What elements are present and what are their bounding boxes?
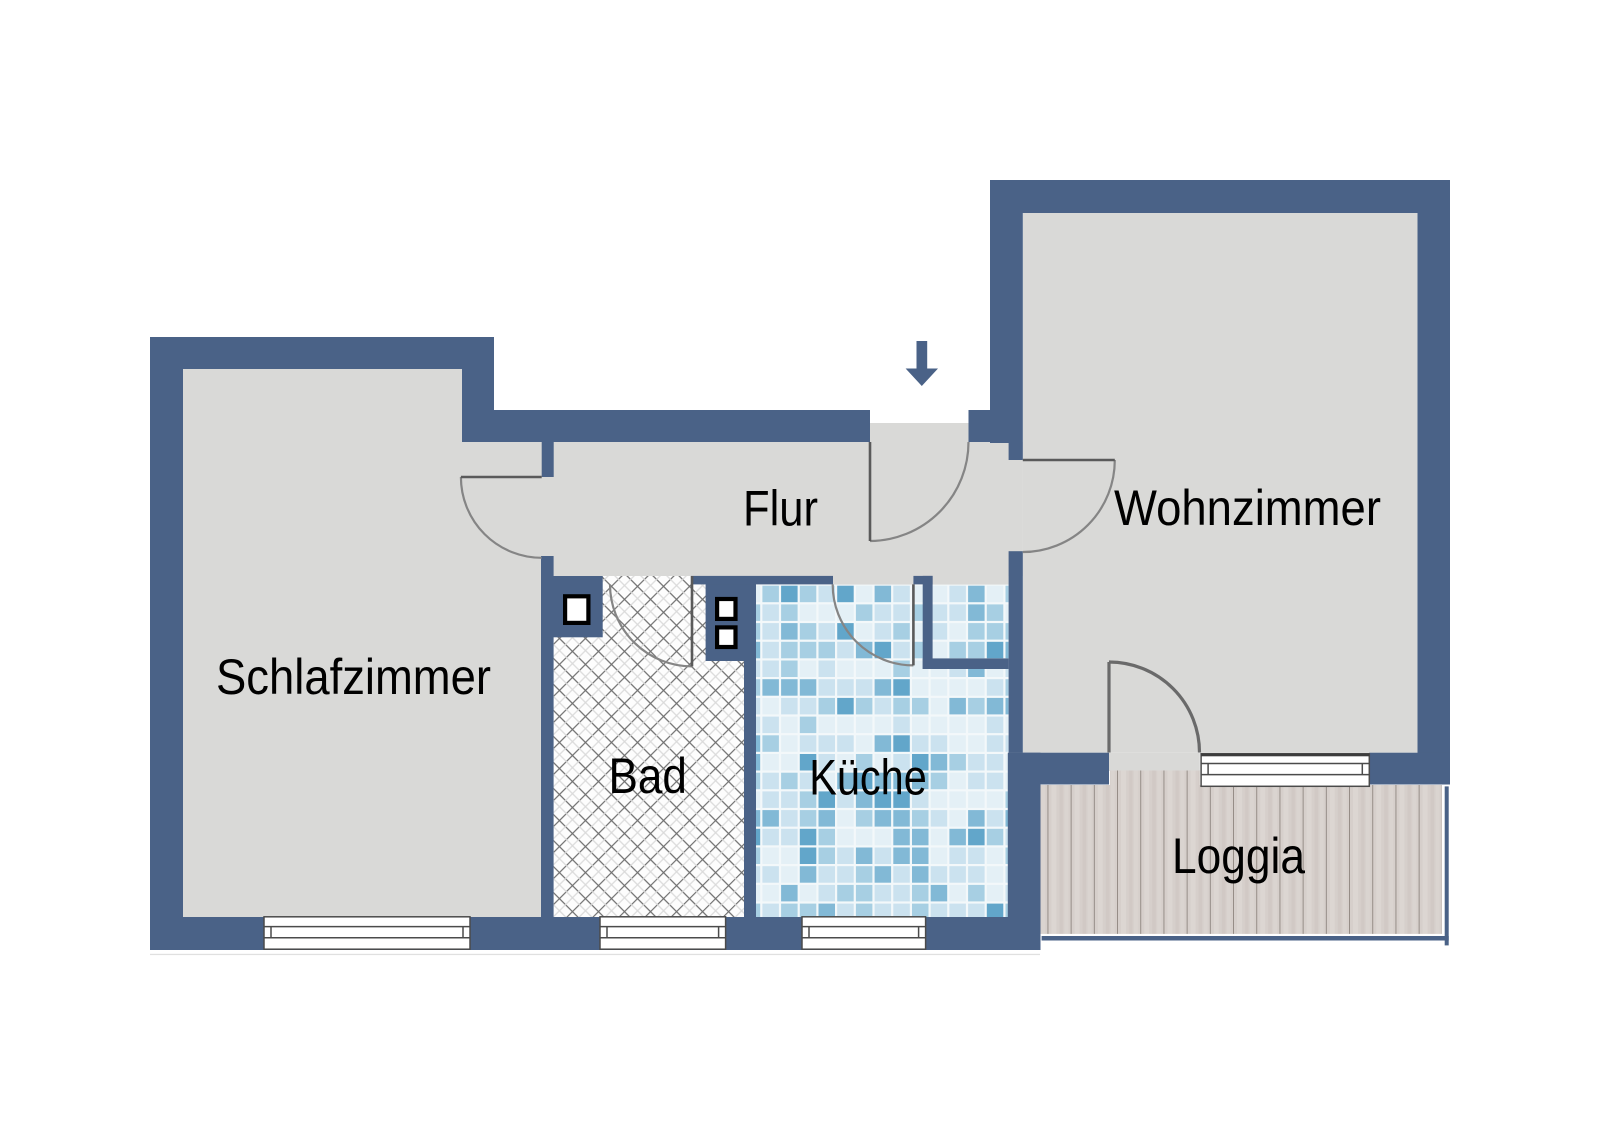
svg-text:Loggia: Loggia	[1172, 828, 1305, 884]
svg-text:Flur: Flur	[743, 481, 818, 537]
svg-text:Bad: Bad	[609, 748, 687, 804]
svg-text:Schlafzimmer: Schlafzimmer	[216, 649, 491, 705]
svg-text:Wohnzimmer: Wohnzimmer	[1114, 480, 1381, 536]
svg-text:Küche: Küche	[809, 749, 927, 805]
